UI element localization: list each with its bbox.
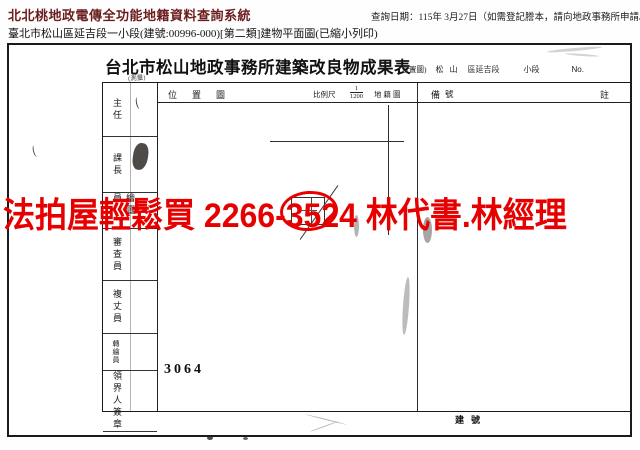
remark-header-right: 註	[600, 88, 609, 101]
staff-row-label: 審查員	[111, 237, 124, 273]
system-title: 北北桃地政電傳全功能地籍資料查詢系統	[8, 5, 251, 24]
form-title: 台北市松山地政事務所建築改良物成果表	[105, 54, 411, 78]
form-title-annotation: (測量)	[128, 71, 146, 82]
location-subsection-label: 小段	[524, 64, 540, 75]
scan-scratch	[310, 421, 339, 432]
location-no-label: No.	[572, 65, 584, 74]
remark-header-left: 備	[431, 88, 440, 101]
staff-signature-column: 主任 課長 繪圖員 審查員 複丈員 轉繪員 領界人簽章	[103, 83, 158, 411]
red-ad-overlay-text: 法拍屋輕鬆買 2266-3524 林代書.林經理	[3, 188, 639, 238]
plan-number: 3064	[164, 362, 204, 378]
table-header-row: 位置圖 比例尺 1 1200 地籍圖 號 備 註	[158, 83, 632, 103]
scan-dot	[207, 436, 213, 440]
location-district: 松山	[436, 64, 464, 75]
location-line: (位置圖) 松山 區延吉段 小段 No.	[399, 64, 584, 75]
pencil-smudge	[547, 46, 602, 54]
document-info-line: 臺北市松山區延吉段一小段(建號:00996-000)[第二類]建物平面圖(已縮小…	[8, 25, 378, 41]
staff-row-resurveyor: 複丈員	[103, 281, 157, 334]
scale-fraction: 1 1200	[350, 85, 363, 100]
scan-dot	[243, 437, 248, 440]
screenshot-root: 北北桃地政電傳全功能地籍資料查詢系統 查詢日期：115年 3月27日（如需登記謄…	[0, 0, 640, 450]
location-section-text: 區延吉段	[468, 64, 500, 75]
cadastral-map-label: 地籍圖	[374, 89, 403, 100]
staff-row-label: 主任	[111, 98, 124, 122]
scale-denominator: 1200	[350, 93, 363, 100]
staff-row-director: 主任	[103, 83, 157, 137]
staff-row-section-chief: 課長	[103, 137, 157, 193]
sheet-number-label: 號	[445, 88, 454, 100]
building-no-label: 建號	[455, 413, 487, 426]
plan-remark-divider	[417, 83, 418, 411]
staff-row-label: 領界人簽章	[111, 371, 124, 431]
registration-cross-horizontal	[270, 141, 404, 142]
scale-label: 比例尺	[313, 89, 336, 100]
staff-row-label: 複丈員	[111, 289, 124, 325]
handwritten-mark	[32, 145, 40, 158]
staff-row-label: 課長	[111, 153, 124, 177]
scanned-document-page: 台北市松山地政事務所建築改良物成果表 (測量) (位置圖) 松山 區延吉段 小段…	[7, 43, 632, 437]
staff-row-label: 轉繪員	[111, 340, 121, 364]
scale-numerator: 1	[350, 85, 363, 93]
query-date-text: 查詢日期：115年 3月27日（如需登記謄本，請向地政事務所申請。）	[371, 9, 640, 23]
location-plan-paren-label: (位置圖)	[399, 64, 427, 75]
plan-area-header: 位置圖	[168, 88, 240, 101]
staff-row-boundary-signature: 領界人簽章	[103, 371, 157, 432]
scan-scratch	[306, 414, 347, 425]
staff-row-transcriber: 轉繪員	[103, 334, 157, 371]
pencil-smudge	[565, 53, 599, 57]
